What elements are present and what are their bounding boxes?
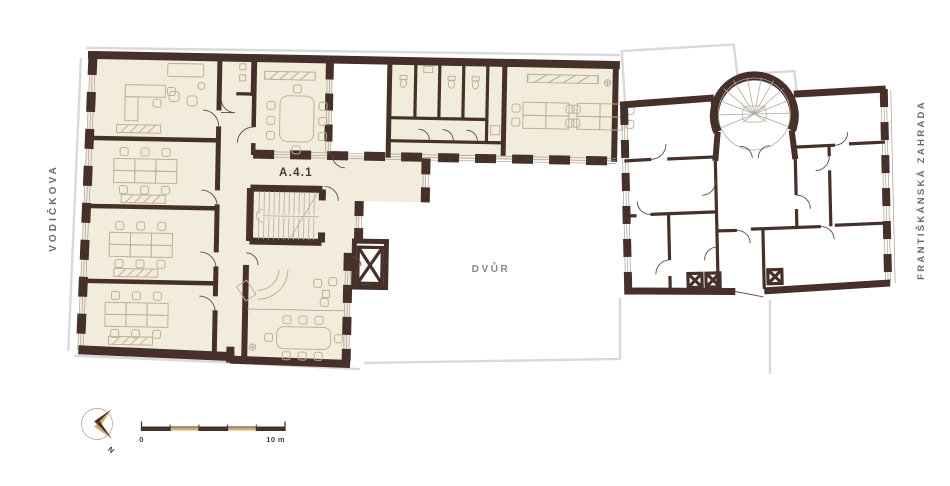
survey-point: [604, 80, 611, 87]
elevator: [354, 241, 387, 288]
street-label-right: FRANTIŠKÁNSKÁ ZAHRADA: [915, 100, 927, 280]
wall-reception-west: [244, 265, 246, 357]
wall-bottom-meeting: [230, 360, 350, 364]
street-label-left: VODIČKOVA: [46, 164, 59, 252]
lightwell: [330, 61, 388, 158]
right-building: [619, 41, 896, 300]
interior-walls-right: [623, 95, 888, 293]
courtyard-label: DVŮR: [472, 261, 511, 275]
wall-roomC-D: [82, 281, 216, 284]
neighbor-outline-left: [68, 58, 81, 351]
wall-meeting-east-piers: [328, 63, 330, 153]
survey-point: [249, 344, 256, 351]
wall-top-right: [794, 89, 886, 94]
left-building-unit: [68, 45, 635, 375]
unit-label: A.4.1: [279, 167, 313, 179]
wall-roomA-B: [86, 138, 218, 141]
floor-plan-page: DVŮR A.4.1: [0, 0, 950, 486]
compass-north-label: N: [106, 445, 116, 455]
scale-start-label: 0: [139, 435, 144, 444]
scale-bar: 0 10 m: [139, 422, 285, 445]
wall-wing-office-west: [503, 63, 505, 156]
wall-lightwell-east: [388, 61, 390, 158]
scale-end-label: 10 m: [266, 435, 285, 444]
spiral-staircase: [713, 75, 795, 161]
window-glazing-right-bldg: [621, 89, 891, 291]
wall-east-wing: [614, 65, 616, 162]
wall-roomB-C: [84, 206, 217, 209]
shafts: [688, 269, 782, 287]
compass-star: [82, 409, 112, 439]
compass-rose: N: [82, 409, 117, 456]
floor-plan-drawing: DVŮR A.4.1: [0, 0, 950, 486]
neighbor-outline-topright: [622, 43, 797, 103]
wall-top-left: [620, 98, 714, 105]
